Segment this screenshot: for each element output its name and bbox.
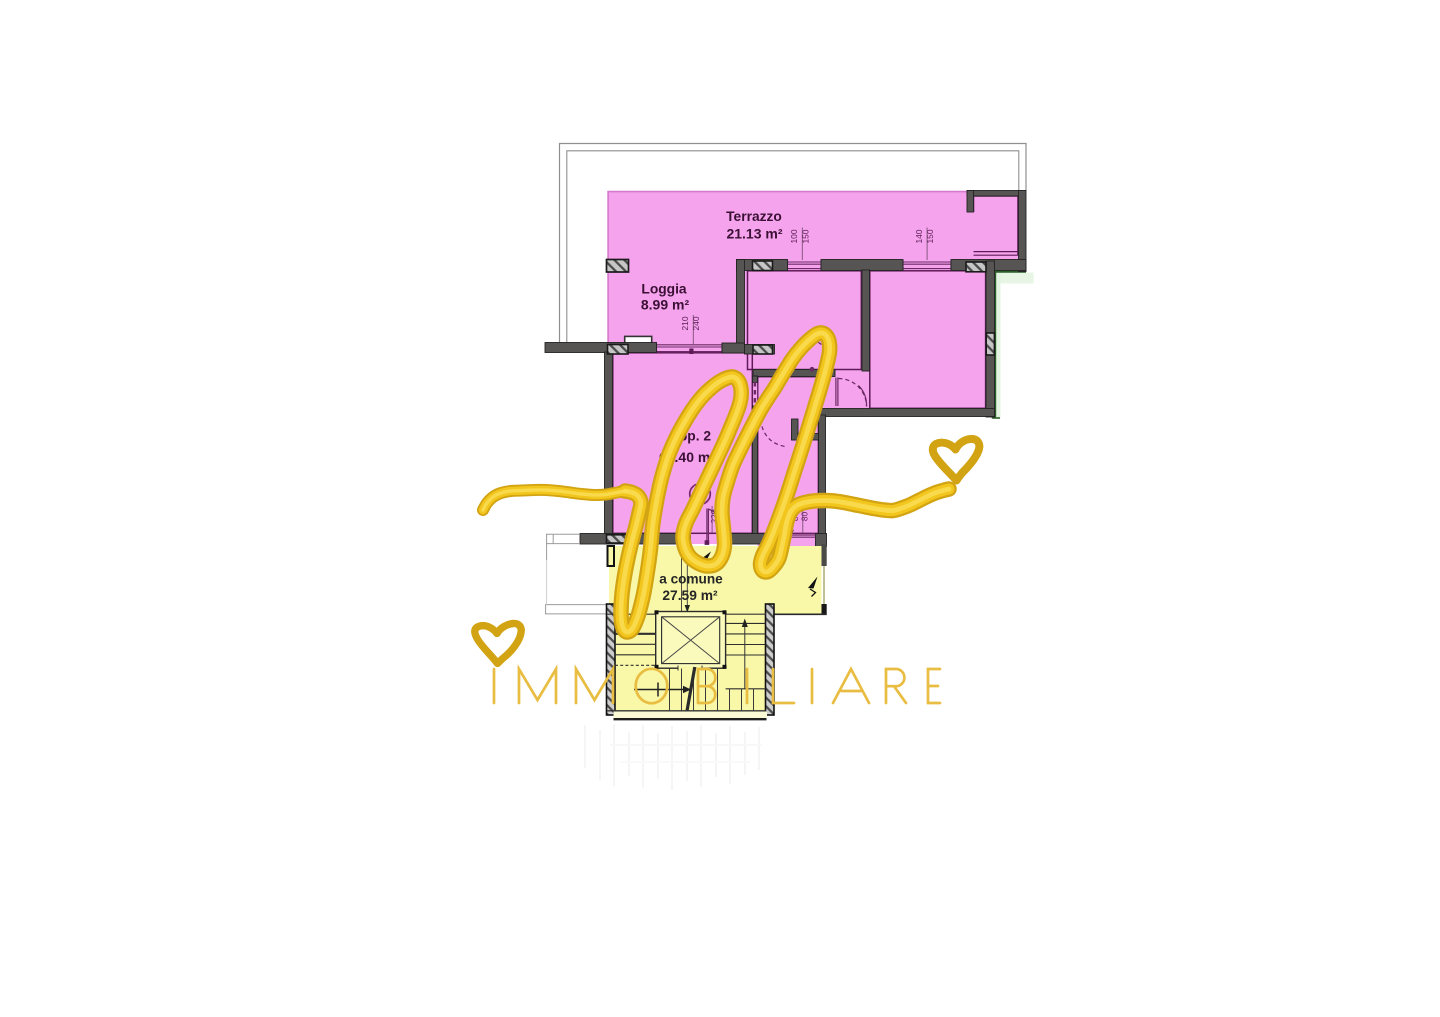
svg-text:150: 150: [925, 229, 935, 243]
svg-text:Terrazzo: Terrazzo: [726, 209, 782, 224]
svg-text:21.13 m²: 21.13 m²: [726, 226, 782, 242]
svg-text:a comune: a comune: [659, 572, 723, 587]
svg-text:150: 150: [801, 229, 811, 243]
svg-text:140: 140: [914, 229, 924, 243]
svg-text:Loggia: Loggia: [641, 282, 687, 297]
svg-text:100: 100: [789, 229, 799, 243]
svg-text:27.59 m²: 27.59 m²: [662, 588, 718, 603]
svg-text:210: 210: [680, 316, 690, 330]
svg-text:240: 240: [691, 316, 701, 330]
svg-text:8.99 m²: 8.99 m²: [641, 297, 690, 313]
svg-text:80: 80: [800, 512, 810, 522]
